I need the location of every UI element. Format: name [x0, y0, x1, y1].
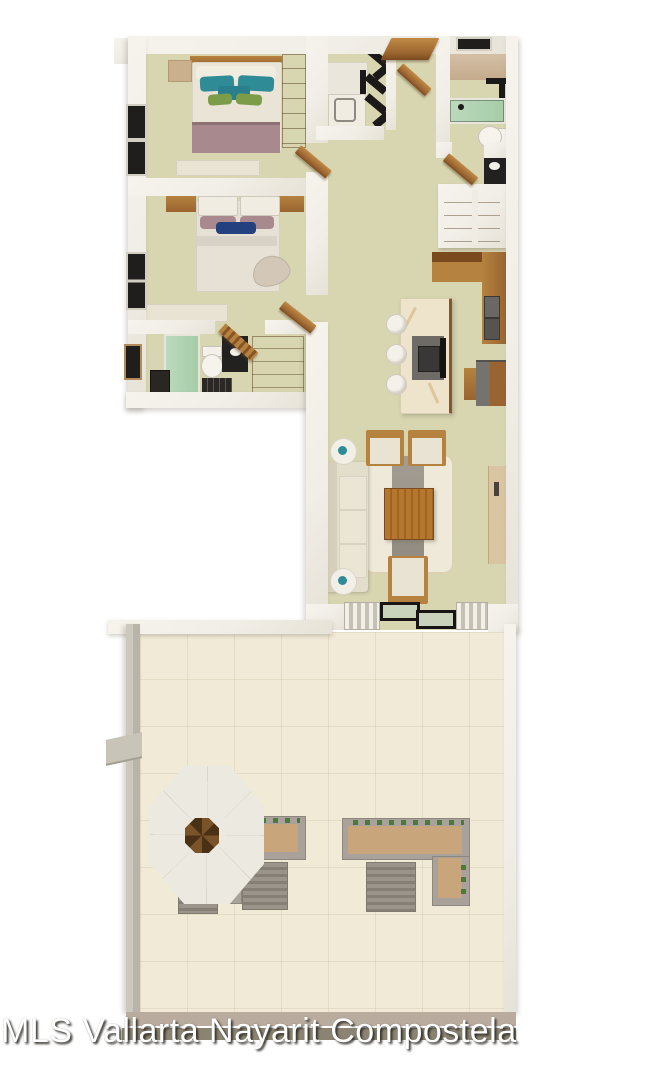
bar-stool-3 [386, 374, 407, 395]
bed2-headboard-left [198, 196, 238, 216]
door-ramp-left [344, 602, 380, 630]
bed1-nightstand [168, 60, 192, 82]
outdoor-sofa-right-cushions [348, 826, 462, 854]
window-bath2 [124, 344, 142, 380]
wall-bedroomwing-south [126, 392, 318, 408]
bed2-nightstand-left [166, 196, 196, 212]
bar-stool-1 [386, 314, 407, 335]
bed2-navy-pillow [216, 222, 256, 234]
wall-laundry-east [386, 54, 396, 130]
side-table-bottom-plant [338, 576, 347, 585]
hall-closet-divider [472, 190, 478, 242]
patio-table-right [366, 862, 416, 912]
wall-bath1-west [436, 36, 450, 158]
coffee-table [384, 488, 434, 540]
laundry-dark-panel [360, 70, 366, 94]
wall-east [506, 36, 518, 632]
bed2-blanket-band [197, 236, 277, 246]
bed1-green-pillow-left [208, 93, 233, 106]
bath2-wood-cabinet [252, 336, 304, 396]
terrace-north-ledge [108, 620, 332, 634]
outdoor-sofa-right-arm-plants [461, 858, 466, 900]
armchair-1-cushion [370, 438, 400, 464]
bar-stool-2 [386, 344, 407, 365]
palapa-roof [150, 766, 264, 904]
wall-bath2-north-left [128, 320, 215, 334]
bed1-wardrobe [282, 54, 306, 148]
side-table-top-plant [338, 446, 347, 455]
laundry-washer-door [334, 98, 356, 122]
bed1-green-pillow-right [236, 93, 263, 106]
bed1-bench [176, 160, 260, 176]
bath1-vanity-counter [450, 54, 506, 80]
armchair-3-cushion [392, 558, 424, 596]
kitchen-fridge-block [476, 360, 506, 406]
outdoor-sofa-right-plants [346, 820, 464, 825]
wall-bath1-south-right [484, 142, 506, 158]
kitchen-oven [484, 296, 500, 318]
wall-bed1-bed2-divider [128, 178, 306, 196]
palapa-center-hub [185, 818, 219, 853]
console-decor [494, 482, 499, 496]
window-north [456, 37, 492, 51]
island-cooktop-grate [418, 346, 440, 372]
terrace-east-wall [504, 624, 516, 1012]
kitchen-side-cabinet [464, 368, 476, 400]
bath1-shower-column [499, 78, 505, 100]
bath2-toilet-bowl [201, 354, 223, 378]
terrace-west-wall [126, 624, 140, 1012]
window-bedroom2 [126, 252, 147, 310]
bed1-foot-blanket [192, 122, 280, 153]
kitchen-microwave [484, 318, 500, 340]
wall-spine-lower [306, 322, 328, 624]
sofa-cushion-2 [339, 510, 367, 544]
sliding-glass-panel-1 [380, 602, 420, 621]
door-ramp-right [456, 602, 488, 630]
bath1-tub-faucet [458, 104, 464, 110]
wall-spine-mid [306, 172, 328, 295]
window-bedroom1 [126, 104, 147, 176]
outdoor-sofa-right-arm-cushion [438, 858, 462, 898]
wall-laundry-south [316, 126, 384, 140]
sliding-glass-panel-2 [416, 610, 456, 629]
island-appliance-strip [440, 338, 446, 378]
armchair-2-cushion [412, 438, 442, 464]
bath1-bathtub [448, 98, 506, 124]
hall-vanity-sink [489, 162, 500, 170]
floor-plan-render: MLS Vallarta Nayarit Compostela [0, 0, 670, 1080]
bed2-nightstand-right [278, 196, 304, 212]
sofa-cushion-1 [339, 476, 367, 510]
bed2-headboard-right [240, 196, 280, 216]
watermark-text: MLS Vallarta Nayarit Compostela [1, 1012, 517, 1051]
